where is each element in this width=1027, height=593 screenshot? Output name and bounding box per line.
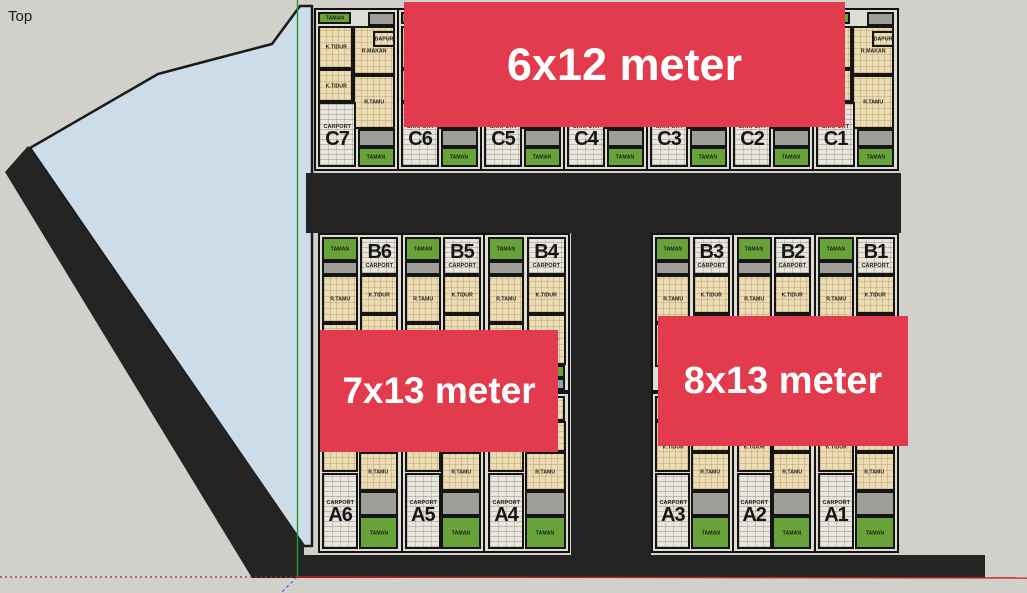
room-label: K.TIDUR <box>451 292 472 298</box>
unit-number: A1 <box>824 506 848 524</box>
unit-number: B6 <box>367 243 391 261</box>
room-bedroom: K.TIDUR <box>318 69 353 102</box>
unit-number: B3 <box>700 243 724 261</box>
room-garden: TAMAN <box>405 237 440 262</box>
room-garden: TAMAN <box>322 237 357 262</box>
room-area <box>857 129 894 146</box>
room-area <box>441 129 477 146</box>
room-label: TAMAN <box>450 154 468 160</box>
room-label: R.TAMU <box>863 99 883 105</box>
carport-B2: B2CARPORT <box>774 237 811 276</box>
size-banner-7x13: 7x13 meter <box>320 330 558 452</box>
room-area <box>772 491 811 516</box>
blue-axis-line <box>281 577 297 593</box>
room-garden: TAMAN <box>441 516 481 549</box>
carport-label: CARPORT <box>448 262 476 267</box>
room-label: R.TAMU <box>369 469 389 475</box>
room-label: R.TAMU <box>364 99 384 105</box>
room-label: TAMAN <box>497 246 515 252</box>
room-kitchen: DAPUR <box>373 31 395 47</box>
carport-label: CARPORT <box>740 499 768 504</box>
room-living: R.TAMU <box>405 275 440 323</box>
room-label: K.TIDUR <box>325 83 346 89</box>
room-label: TAMAN <box>783 530 801 536</box>
room-label: TAMAN <box>533 154 551 160</box>
carport-A6: CARPORTA6 <box>322 473 357 550</box>
carport-B1: B1CARPORT <box>856 237 894 276</box>
room-garden: TAMAN <box>737 237 772 262</box>
size-banner-6x12: 6x12 meter <box>404 2 845 127</box>
unit-number: B4 <box>534 243 558 261</box>
room-bedroom: K.TIDUR <box>443 275 481 314</box>
room-label: K.TIDUR <box>369 292 390 298</box>
room-label: TAMAN <box>782 154 800 160</box>
room-label: TAMAN <box>616 154 634 160</box>
carport-A4: CARPORTA4 <box>488 473 524 550</box>
room-garden: TAMAN <box>857 147 894 168</box>
room-label: K.TIDUR <box>535 292 556 298</box>
room-label: TAMAN <box>325 15 343 21</box>
carport-B5: B5CARPORT <box>443 237 481 276</box>
carport-label: CARPORT <box>409 499 437 504</box>
room-living: R.TAMU <box>772 452 811 491</box>
room-label: K.TIDUR <box>701 292 722 298</box>
unit-number: B2 <box>781 243 805 261</box>
room-label: TAMAN <box>865 530 883 536</box>
room-label: R.TAMU <box>782 469 802 475</box>
unit-number: A4 <box>494 506 518 524</box>
room-label: K.TIDUR <box>325 44 346 50</box>
room-bedroom: K.TIDUR <box>856 275 894 314</box>
room-label: TAMAN <box>867 154 885 160</box>
room-area <box>405 261 440 275</box>
room-label: K.TIDUR <box>782 292 803 298</box>
room-label: TAMAN <box>699 154 717 160</box>
room-area <box>358 129 394 146</box>
room-bedroom: K.TIDUR <box>527 275 566 314</box>
room-bedroom: K.TIDUR <box>774 275 811 314</box>
unit-number: B5 <box>450 243 474 261</box>
carport-label: CARPORT <box>779 262 807 267</box>
room-garden: TAMAN <box>441 147 477 168</box>
room-bedroom: K.TIDUR <box>318 26 353 69</box>
room-garden: TAMAN <box>818 237 854 262</box>
room-area <box>737 261 772 275</box>
unit-number: A6 <box>328 506 352 524</box>
room-garden: TAMAN <box>359 516 399 549</box>
size-banner-8x13: 8x13 meter <box>658 316 908 446</box>
room-label: DAPUR <box>374 36 393 42</box>
room-area <box>607 129 643 146</box>
room-garden: TAMAN <box>855 516 895 549</box>
carport-label: CARPORT <box>659 499 687 504</box>
carport-C7: CARPORTC7 <box>318 102 355 167</box>
room-area <box>524 129 560 146</box>
unit-number: C3 <box>657 130 681 148</box>
room-garden: TAMAN <box>607 147 643 168</box>
carport-B6: B6CARPORT <box>360 237 398 276</box>
unit-number: C7 <box>325 130 349 148</box>
room-garden: TAMAN <box>655 237 690 262</box>
unit-number: C2 <box>740 130 764 148</box>
carport-B4: B4CARPORT <box>527 237 566 276</box>
room-area <box>855 491 895 516</box>
room-area <box>690 129 726 146</box>
room-living: R.TAMU <box>322 275 357 323</box>
room-label: R.TAMU <box>535 469 555 475</box>
carport-A5: CARPORTA5 <box>405 473 440 550</box>
room-garden: TAMAN <box>525 516 566 549</box>
room-living: R.TAMU <box>525 452 566 491</box>
room-label: R.TAMU <box>701 469 721 475</box>
room-label: R.TAMU <box>413 296 433 302</box>
room-area <box>322 261 357 275</box>
room-label: R.TAMU <box>451 469 471 475</box>
unit-number: C5 <box>491 130 515 148</box>
unit-number: A5 <box>411 506 435 524</box>
room-label: TAMAN <box>414 246 432 252</box>
room-label: TAMAN <box>331 246 349 252</box>
red-axis-line <box>297 577 1027 578</box>
room-garden: TAMAN <box>772 516 811 549</box>
room-living: R.TAMU <box>359 452 399 491</box>
carport-label: CARPORT <box>862 262 890 267</box>
room-area <box>525 491 566 516</box>
carport-A2: CARPORTA2 <box>737 473 772 550</box>
room-label: TAMAN <box>367 154 385 160</box>
room-living: R.TAMU <box>691 452 730 491</box>
site-plan-viewport: Top TAMANK.TIDURK.TIDURR.MAKANDAPURR.TAM… <box>0 0 1027 593</box>
room-area <box>359 491 399 516</box>
room-area <box>441 491 481 516</box>
room-living: R.TAMU <box>488 275 524 323</box>
room-garden: TAMAN <box>358 147 394 168</box>
room-area <box>488 261 524 275</box>
room-label: TAMAN <box>827 246 845 252</box>
room-bedroom: K.TIDUR <box>360 275 398 314</box>
room-area <box>867 12 894 26</box>
carport-B3: B3CARPORT <box>693 237 730 276</box>
carport-label: CARPORT <box>323 123 351 128</box>
room-label: R.MAKAN <box>362 48 387 54</box>
room-label: DAPUR <box>874 36 893 42</box>
unit-number: B1 <box>864 243 888 261</box>
room-label: K.TIDUR <box>865 292 886 298</box>
unit-number: C1 <box>824 130 848 148</box>
carport-A1: CARPORTA1 <box>818 473 854 550</box>
room-garden: TAMAN <box>691 516 730 549</box>
room-label: R.MAKAN <box>861 48 886 54</box>
carport-label: CARPORT <box>532 262 560 267</box>
unit-number: A2 <box>742 506 766 524</box>
room-label: TAMAN <box>536 530 554 536</box>
carport-label: CARPORT <box>698 262 726 267</box>
carport-label: CARPORT <box>326 499 354 504</box>
room-area <box>368 12 395 26</box>
room-living: R.TAMU <box>852 75 894 129</box>
room-label: R.TAMU <box>663 296 683 302</box>
room-label: R.TAMU <box>496 296 516 302</box>
room-area <box>691 491 730 516</box>
room-garden: TAMAN <box>488 237 524 262</box>
unit-C7: TAMANK.TIDURK.TIDURR.MAKANDAPURR.TAMUCAR… <box>316 10 399 169</box>
room-label: TAMAN <box>745 246 763 252</box>
room-label: R.TAMU <box>744 296 764 302</box>
room-label: TAMAN <box>664 246 682 252</box>
carport-label: CARPORT <box>492 499 520 504</box>
room-label: TAMAN <box>452 530 470 536</box>
unit-number: C6 <box>408 130 432 148</box>
room-bedroom: K.TIDUR <box>693 275 730 314</box>
unit-number: C4 <box>574 130 598 148</box>
carport-A3: CARPORTA3 <box>655 473 690 550</box>
room-label: TAMAN <box>701 530 719 536</box>
carport-label: CARPORT <box>365 262 393 267</box>
room-living: R.TAMU <box>855 452 895 491</box>
bottom-road <box>293 555 985 578</box>
room-label: R.TAMU <box>826 296 846 302</box>
room-garden: TAMAN <box>773 147 809 168</box>
room-garden: TAMAN <box>524 147 560 168</box>
room-area <box>818 261 854 275</box>
room-kitchen: DAPUR <box>872 31 894 47</box>
room-garden: TAMAN <box>690 147 726 168</box>
room-label: R.TAMU <box>865 469 885 475</box>
viewport-label: Top <box>8 8 32 25</box>
center-road <box>571 233 651 555</box>
unit-number: A3 <box>661 506 685 524</box>
room-label: R.TAMU <box>330 296 350 302</box>
room-garden: TAMAN <box>318 12 350 25</box>
carport-label: CARPORT <box>822 499 850 504</box>
room-label: TAMAN <box>369 530 387 536</box>
room-area <box>773 129 809 146</box>
room-living: R.TAMU <box>441 452 481 491</box>
room-area <box>655 261 690 275</box>
room-living: R.TAMU <box>353 75 394 129</box>
